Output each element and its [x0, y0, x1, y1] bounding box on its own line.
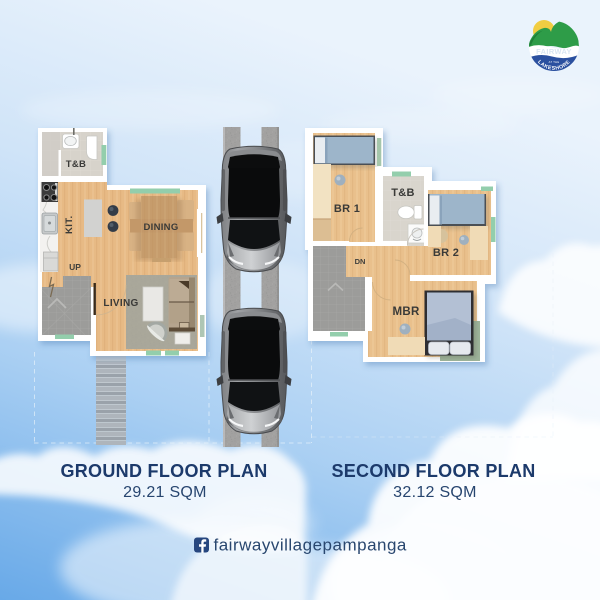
- svg-text:32.12 SQM: 32.12 SQM: [393, 484, 477, 501]
- svg-text:BR 2: BR 2: [433, 247, 459, 259]
- svg-text:KIT.: KIT.: [64, 216, 75, 235]
- svg-text:29.21 SQM: 29.21 SQM: [123, 484, 207, 501]
- svg-text:UP: UP: [69, 262, 81, 272]
- svg-text:SECOND FLOOR PLAN: SECOND FLOOR PLAN: [331, 461, 535, 481]
- svg-text:DN: DN: [355, 257, 366, 266]
- svg-text:T&B: T&B: [391, 187, 415, 199]
- svg-text:GROUND FLOOR PLAN: GROUND FLOOR PLAN: [60, 461, 267, 481]
- svg-text:BR 1: BR 1: [334, 203, 360, 215]
- svg-text:LIVING: LIVING: [103, 298, 138, 309]
- svg-text:DINING: DINING: [143, 222, 178, 233]
- svg-text:T&B: T&B: [66, 159, 86, 170]
- svg-text:FAIRWAY: FAIRWAY: [536, 47, 572, 56]
- svg-text:AT THE: AT THE: [549, 60, 560, 64]
- svg-text:MBR: MBR: [392, 306, 419, 318]
- svg-text:fairwayvillagepampanga: fairwayvillagepampanga: [214, 536, 407, 555]
